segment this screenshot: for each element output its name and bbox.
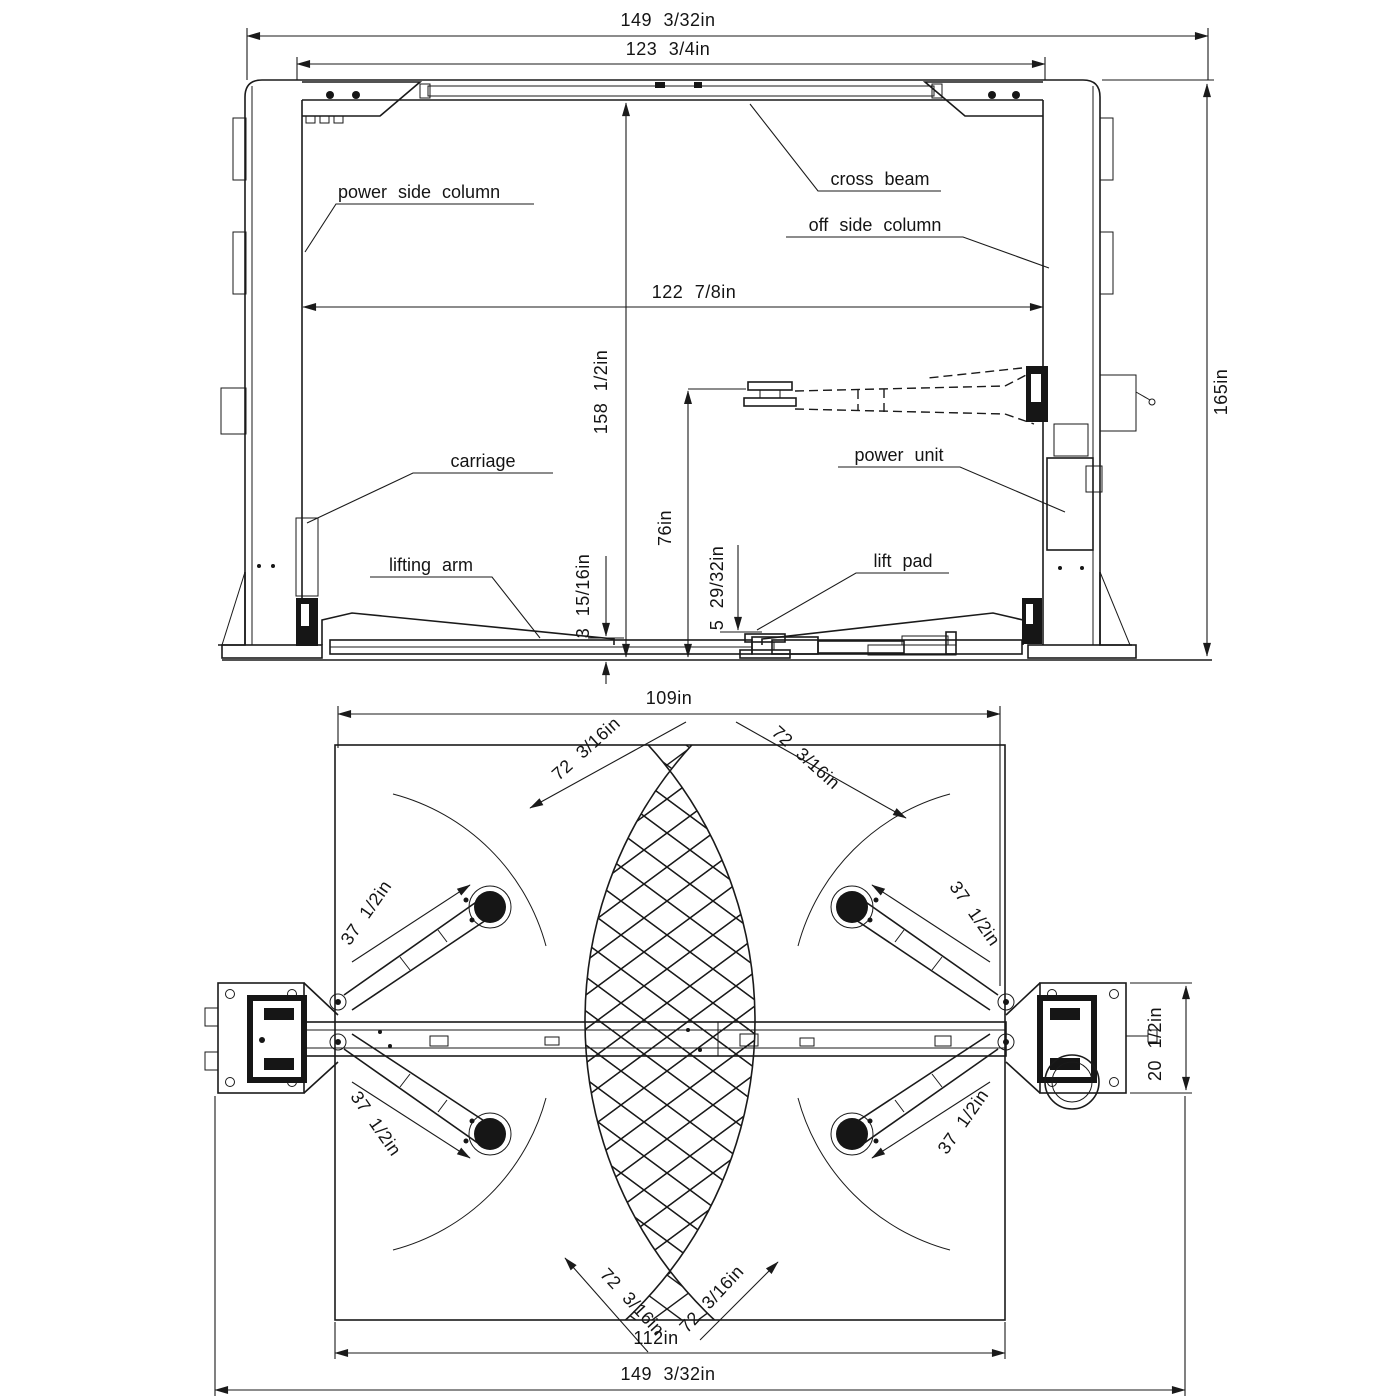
- dim-text-inner-width: 123 3/4in: [626, 39, 711, 59]
- two-post-lift-spec-diagram: 149 3/32in 123 3/4in 122 7/8in 165in 158…: [0, 0, 1400, 1400]
- dim-text-overall-width-bottom: 149 3/32in: [620, 1364, 715, 1384]
- label-text-power-side-column: power side column: [338, 182, 500, 202]
- dim-text-max-lift-height: 76in: [655, 510, 675, 546]
- dim-text-pad-min-height: 5 29/32in: [707, 546, 727, 631]
- dim-text-overall-height: 165in: [1211, 369, 1231, 416]
- dim-text-baseplate-width: 20 1/2in: [1145, 1007, 1165, 1081]
- dim-text-arm-min-height: 3 15/16in: [573, 554, 593, 639]
- label-text-carriage: carriage: [450, 451, 515, 471]
- dim-text-inside-width: 109in: [646, 688, 693, 708]
- dim-text-column-height: 158 1/2in: [591, 350, 611, 435]
- label-text-lifting-arm: lifting arm: [389, 555, 473, 575]
- label-text-cross-beam: cross beam: [830, 169, 929, 189]
- label-text-off-side-column: off side column: [809, 215, 942, 235]
- dim-text-clear-width: 122 7/8in: [652, 282, 737, 302]
- dim-text-base-width: 112in: [633, 1328, 678, 1348]
- label-text-power-unit: power unit: [854, 445, 943, 465]
- dim-text-overall-width: 149 3/32in: [620, 10, 715, 30]
- label-text-lift-pad: lift pad: [873, 551, 932, 571]
- diagram-canvas: 149 3/32in 123 3/4in 122 7/8in 165in 158…: [0, 0, 1400, 1400]
